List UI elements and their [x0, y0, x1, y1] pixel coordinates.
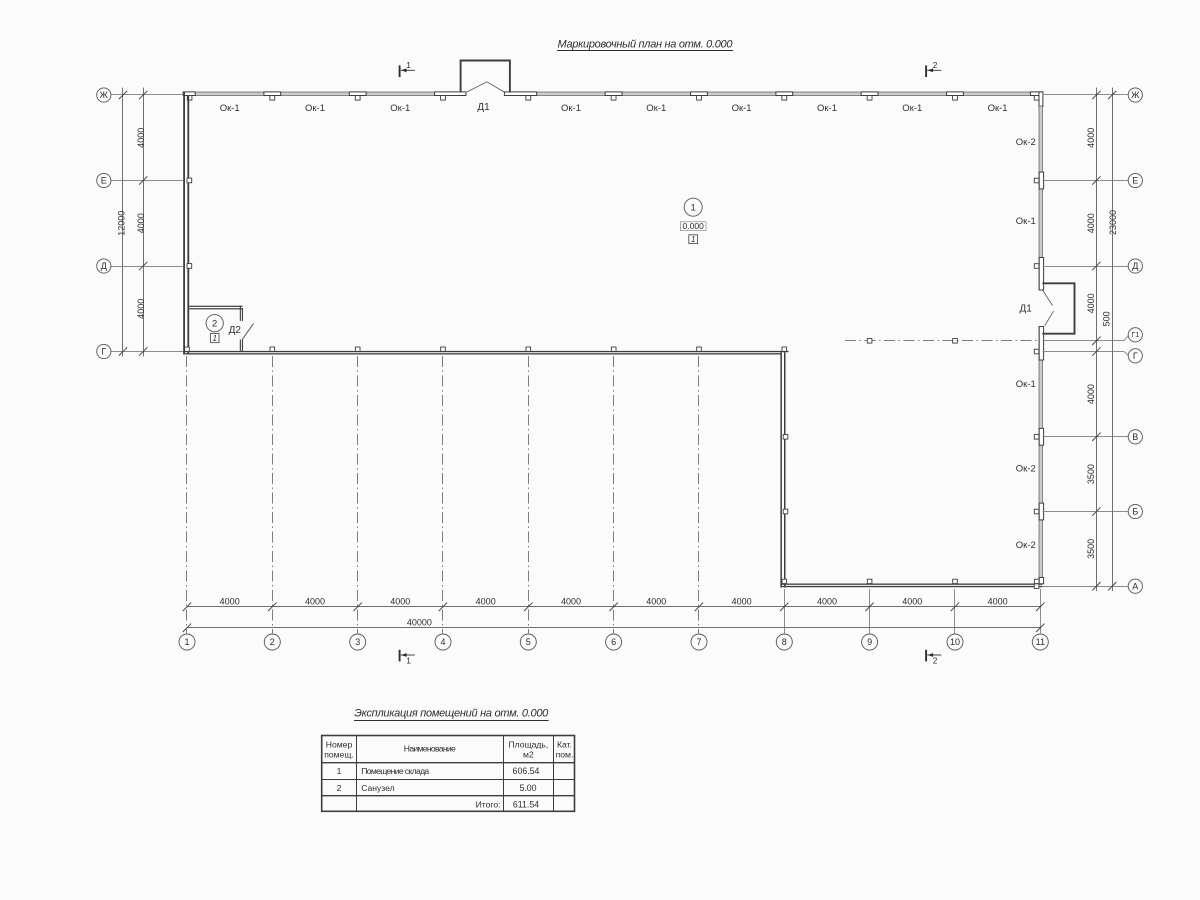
- svg-text:Помещение склада: Помещение склада: [361, 766, 429, 776]
- svg-text:4000: 4000: [646, 596, 666, 606]
- svg-text:Б: Б: [1132, 507, 1138, 517]
- svg-text:4000: 4000: [136, 299, 146, 319]
- svg-text:Ок-1: Ок-1: [390, 103, 410, 114]
- svg-text:4000: 4000: [136, 128, 146, 148]
- svg-text:Ж: Ж: [100, 90, 109, 100]
- svg-text:Ок-1: Ок-1: [646, 103, 666, 114]
- svg-text:2: 2: [933, 60, 938, 70]
- svg-text:8: 8: [782, 637, 787, 647]
- svg-text:4000: 4000: [1086, 128, 1096, 148]
- svg-text:4000: 4000: [1086, 213, 1096, 233]
- svg-text:Ок-1: Ок-1: [902, 103, 922, 114]
- svg-text:1: 1: [406, 656, 411, 666]
- svg-text:помещ.: помещ.: [324, 750, 354, 760]
- svg-text:Г: Г: [1133, 351, 1138, 361]
- svg-text:11: 11: [1036, 637, 1045, 647]
- svg-text:5: 5: [526, 637, 531, 647]
- svg-text:4000: 4000: [902, 596, 922, 606]
- svg-text:Д1: Д1: [477, 102, 490, 113]
- svg-text:Д2: Д2: [229, 325, 242, 336]
- svg-text:4: 4: [440, 637, 445, 647]
- svg-text:1: 1: [337, 766, 342, 776]
- svg-text:2: 2: [933, 656, 938, 666]
- svg-text:Ок-1: Ок-1: [1016, 216, 1036, 227]
- svg-text:Ок-1: Ок-1: [1016, 379, 1036, 390]
- svg-text:Наименование: Наименование: [404, 744, 456, 754]
- svg-text:23000: 23000: [1108, 210, 1118, 235]
- svg-text:Экспликация помещений на отм.: Экспликация помещений на отм. 0.000: [354, 707, 549, 719]
- svg-text:4000: 4000: [817, 596, 837, 606]
- svg-text:Итого:: Итого:: [476, 799, 501, 809]
- svg-text:1: 1: [184, 637, 189, 647]
- svg-text:2: 2: [337, 783, 342, 793]
- svg-text:4000: 4000: [1086, 384, 1096, 404]
- svg-text:4000: 4000: [732, 596, 752, 606]
- svg-text:4000: 4000: [220, 596, 240, 606]
- svg-text:4000: 4000: [1086, 293, 1096, 313]
- svg-text:4000: 4000: [390, 596, 410, 606]
- svg-text:500: 500: [1102, 311, 1112, 326]
- svg-text:Г: Г: [101, 347, 106, 357]
- svg-text:Е: Е: [101, 176, 107, 186]
- svg-text:Ок-1: Ок-1: [988, 103, 1008, 114]
- svg-text:3500: 3500: [1086, 464, 1096, 484]
- svg-text:7: 7: [696, 637, 701, 647]
- svg-text:3: 3: [355, 637, 360, 647]
- svg-text:606.54: 606.54: [513, 766, 540, 776]
- svg-text:В: В: [1132, 432, 1138, 442]
- svg-text:Ок-1: Ок-1: [305, 103, 325, 114]
- svg-text:2: 2: [212, 319, 217, 330]
- svg-text:Ок-1: Ок-1: [220, 103, 240, 114]
- svg-text:2: 2: [270, 637, 275, 647]
- svg-text:Ок-1: Ок-1: [561, 103, 581, 114]
- svg-text:4000: 4000: [136, 213, 146, 233]
- svg-text:3500: 3500: [1086, 539, 1096, 559]
- svg-text:4000: 4000: [988, 596, 1008, 606]
- svg-text:м2: м2: [523, 750, 534, 760]
- svg-text:4000: 4000: [305, 596, 325, 606]
- svg-text:10: 10: [950, 637, 960, 647]
- svg-text:Г1: Г1: [1131, 332, 1139, 339]
- svg-text:40000: 40000: [407, 618, 432, 628]
- svg-text:Ок-1: Ок-1: [732, 103, 752, 114]
- svg-text:4000: 4000: [561, 596, 581, 606]
- svg-text:Д1: Д1: [1019, 304, 1032, 315]
- svg-text:Ж: Ж: [1131, 90, 1140, 100]
- svg-text:1: 1: [691, 235, 695, 244]
- svg-text:0.000: 0.000: [683, 221, 705, 231]
- svg-text:Санузел: Санузел: [361, 783, 394, 793]
- svg-text:611.54: 611.54: [513, 799, 539, 809]
- svg-text:9: 9: [867, 637, 872, 647]
- svg-text:А: А: [1132, 581, 1138, 591]
- svg-text:Д: Д: [1132, 261, 1138, 271]
- svg-text:Номер: Номер: [326, 740, 353, 750]
- svg-text:Е: Е: [1132, 176, 1138, 186]
- svg-text:6: 6: [611, 637, 616, 647]
- svg-text:1: 1: [212, 334, 216, 343]
- svg-text:5.00: 5.00: [519, 783, 536, 793]
- svg-text:Ок-2: Ок-2: [1016, 540, 1036, 551]
- svg-text:пом.: пом.: [556, 750, 574, 760]
- svg-text:1: 1: [691, 203, 696, 214]
- svg-text:1: 1: [406, 60, 411, 70]
- svg-text:4000: 4000: [476, 596, 496, 606]
- svg-text:Ок-1: Ок-1: [817, 103, 837, 114]
- svg-text:Ок-2: Ок-2: [1016, 137, 1036, 148]
- svg-text:Д: Д: [101, 261, 107, 271]
- svg-text:Площадь,: Площадь,: [509, 740, 549, 750]
- svg-text:12000: 12000: [116, 211, 126, 236]
- svg-text:Маркировочный план на отм. 0.0: Маркировочный план на отм. 0.000: [558, 38, 734, 50]
- svg-text:Ок-2: Ок-2: [1016, 464, 1036, 475]
- svg-text:Кат.: Кат.: [557, 740, 572, 750]
